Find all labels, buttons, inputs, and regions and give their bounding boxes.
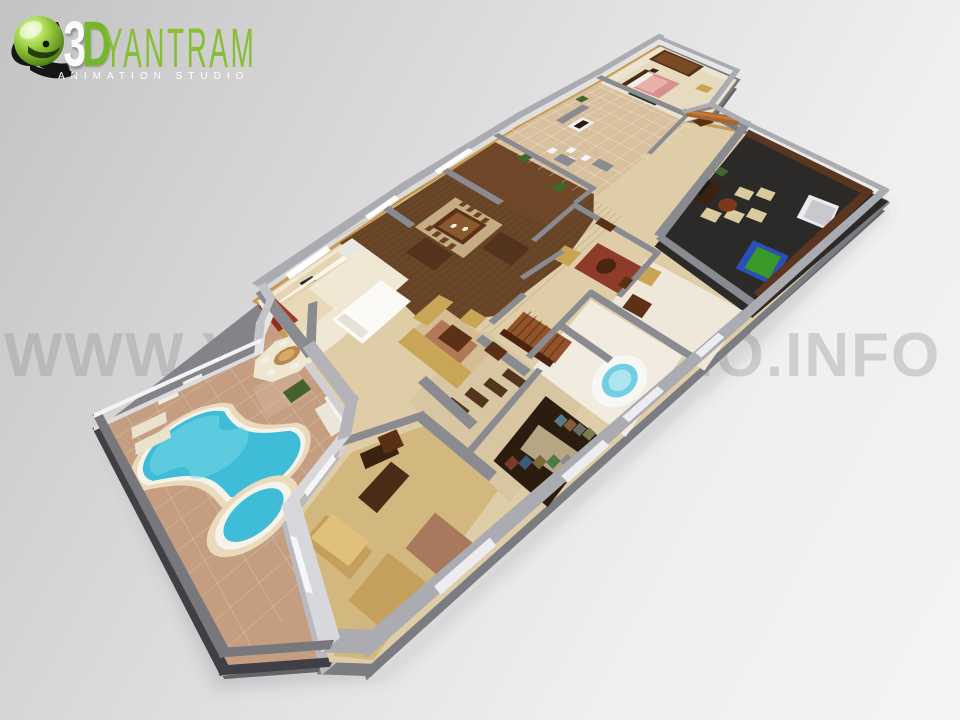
svg-text:ANIMATION STUDIO: ANIMATION STUDIO [58, 71, 249, 82]
